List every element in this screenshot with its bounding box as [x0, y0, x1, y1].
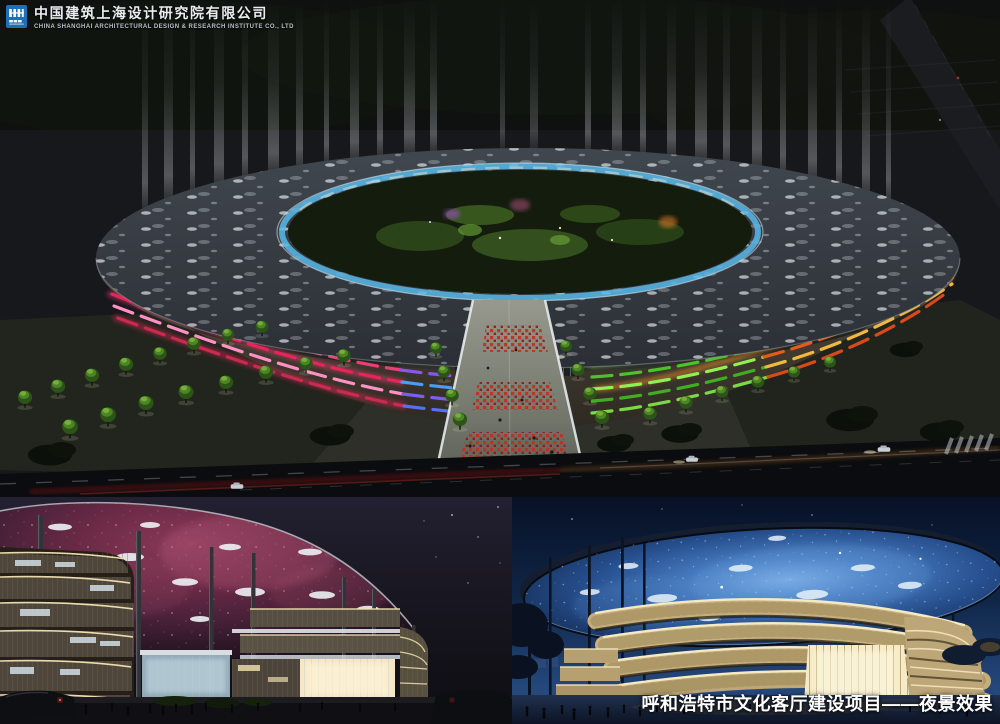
presentation-board: 中国建筑上海设计研究院有限公司 CHINA SHANGHAI ARCHITECT… — [0, 0, 1000, 724]
car-left-corner — [0, 691, 76, 719]
project-caption: 呼和浩特市文化客厅建设项目——夜景效果 — [642, 690, 994, 716]
car-right-corner — [430, 690, 512, 724]
left-tower — [0, 547, 134, 709]
company-name-en: CHINA SHANGHAI ARCHITECTURAL DESIGN & RE… — [34, 23, 294, 31]
glass-pavilion — [140, 650, 232, 697]
bottom-left-rendering — [0, 497, 512, 724]
main-aerial-scene — [0, 0, 1000, 497]
company-logo-icon — [6, 5, 27, 28]
company-name-cn: 中国建筑上海设计研究院有限公司 — [34, 5, 294, 21]
main-aerial-rendering — [0, 0, 1000, 497]
canopy-scene — [0, 497, 512, 724]
left-annex — [556, 649, 622, 697]
company-brand: 中国建筑上海设计研究院有限公司 CHINA SHANGHAI ARCHITECT… — [6, 5, 294, 31]
gold-facade — [556, 599, 988, 703]
